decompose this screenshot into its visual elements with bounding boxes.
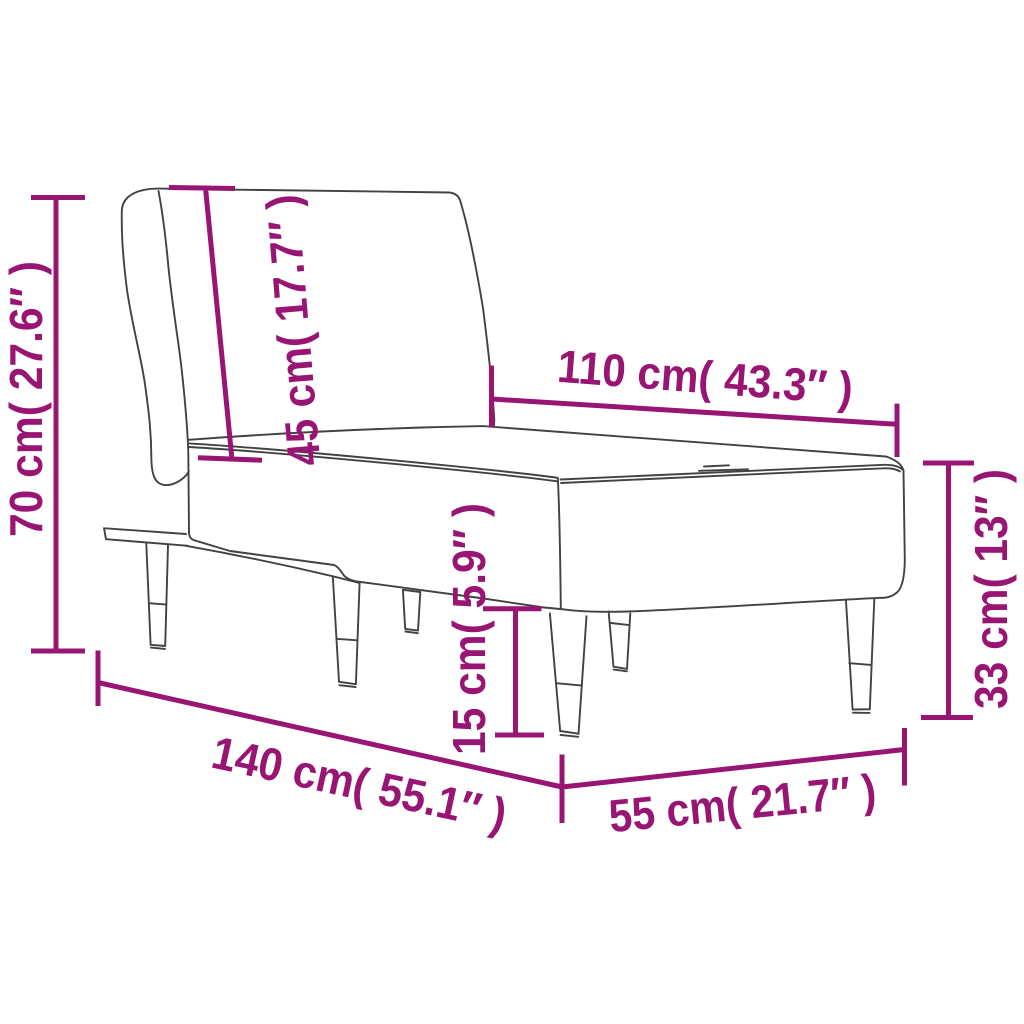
svg-text:33 cm( 13″ ): 33 cm( 13″ ) — [965, 469, 1017, 709]
svg-text:15 cm( 5.9″ ): 15 cm( 5.9″ ) — [443, 503, 495, 755]
svg-text:70 cm( 27.6″ ): 70 cm( 27.6″ ) — [0, 261, 52, 537]
